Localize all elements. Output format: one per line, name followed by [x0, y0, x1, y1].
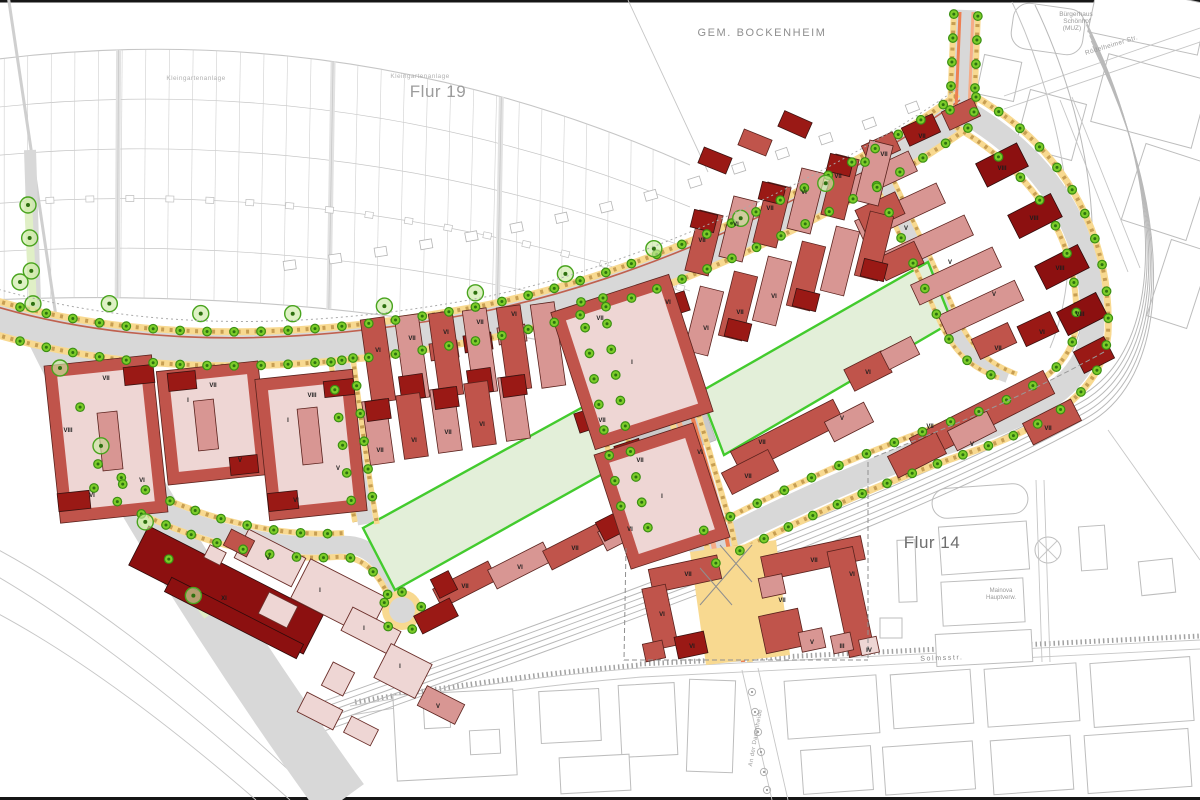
building-floor-label: VII [376, 448, 384, 454]
building-floor-label: VI [865, 370, 871, 376]
building [820, 226, 859, 296]
building-floor-label: V [436, 704, 440, 710]
building-floor-label: XI [221, 596, 227, 602]
building-floor-label: VI [849, 572, 855, 578]
area-label: Kleingartenanlage [390, 73, 449, 80]
building [752, 256, 791, 326]
building-floor-label: VI [771, 294, 777, 300]
building-floor-label: VI [511, 312, 517, 318]
building-floor-label: VII [1044, 426, 1052, 432]
building-floor-label: VII [461, 584, 469, 590]
building [724, 318, 752, 341]
building-floor-label: VI [139, 478, 145, 484]
building [57, 490, 91, 511]
building-floor-label: V [266, 556, 270, 562]
building-floor-label: VII [698, 238, 706, 244]
building [321, 662, 354, 696]
building [642, 640, 665, 662]
building-floor-label: VII [408, 336, 416, 342]
building-floor-label: V [948, 260, 952, 266]
building [396, 393, 429, 460]
building-floor-label: VII [444, 430, 452, 436]
area-label: Hauptverw. [986, 595, 1016, 601]
building-floor-label: V [810, 640, 814, 646]
building-floor-label: VIII [1029, 216, 1038, 222]
building-floor-label: VIII [1055, 266, 1064, 272]
street-label: An der Dammheide [748, 708, 764, 767]
building [123, 364, 155, 385]
building-floor-label: VII [596, 316, 604, 322]
building-floor-label: VI [443, 330, 449, 336]
building-floor-label: VI [411, 438, 417, 444]
building-floor-label: VII [834, 174, 842, 180]
area-label: Schönhof [1063, 18, 1091, 25]
building-floor-label: VI [517, 565, 523, 571]
building-floor-label: VI [665, 300, 671, 306]
building-floor-label: VI [733, 222, 739, 228]
building-floor-label: VII [744, 474, 752, 480]
area-label: (MUZ) [1063, 25, 1081, 32]
building-floor-label: VI [375, 348, 381, 354]
building-floor-label: IV [866, 648, 872, 654]
building [365, 398, 392, 421]
area-label: GEM. BOCKENHEIM [697, 27, 826, 39]
building [501, 374, 528, 397]
building [758, 608, 805, 653]
building-floor-label: VII [571, 546, 579, 552]
building-floor-label: VII [926, 424, 934, 430]
building-floor-label: VIII [997, 166, 1006, 172]
building-floor-label: VI [1039, 330, 1045, 336]
building-floor-label: VII [598, 418, 606, 424]
building-floor-label: III [839, 644, 844, 650]
building-floor-label: V [970, 442, 974, 448]
building-floor-label: VII [636, 458, 644, 464]
building-floor-label: VIII [307, 393, 316, 399]
building-floor-label: VI [627, 527, 633, 533]
building-floor-label: VI [479, 422, 485, 428]
building-floor-label: VIII [63, 428, 72, 434]
building-floor-label: VII [766, 206, 774, 212]
area-label: Flur 14 [904, 533, 960, 552]
building-floor-label: VII [209, 383, 217, 389]
building-floor-label: V [336, 466, 340, 472]
building-floor-label: VII [778, 598, 786, 604]
building [778, 111, 812, 139]
building [792, 288, 820, 311]
building-floor-label: VI [659, 612, 665, 618]
building-floor-label: VI [801, 190, 807, 196]
building [229, 455, 259, 476]
building [698, 147, 732, 174]
building-floor-label: VI [89, 493, 95, 499]
building [738, 129, 772, 156]
building-floor-label: VII [810, 558, 818, 564]
site-plan-page: GEM. BOCKENHEIMFlur 19Flur 14Kleingarten… [0, 0, 1200, 800]
building-floor-label: V [238, 458, 242, 464]
building-floor-label: VII [994, 346, 1002, 352]
area-label: Kleingartenanlage [166, 75, 225, 82]
building-floor-label: VII [102, 376, 110, 382]
site-plan-map: GEM. BOCKENHEIMFlur 19Flur 14Kleingarten… [0, 0, 1200, 800]
building-floor-label: V [904, 226, 908, 232]
building-floor-label: VII [758, 440, 766, 446]
area-label: Bürgerhaus [1059, 11, 1093, 18]
building-floor-label: VII [736, 310, 744, 316]
building-floor-label: V [992, 292, 996, 298]
building-floor-label: VII [880, 152, 888, 158]
building-floor-label: V [840, 416, 844, 422]
building [167, 371, 197, 392]
building-floor-label: VII [918, 134, 926, 140]
building [690, 209, 718, 232]
building-floor-label: VI [703, 326, 709, 332]
building [433, 386, 460, 409]
building [971, 323, 1017, 360]
building-floor-label: VII [684, 572, 692, 578]
area-label: Flur 19 [410, 82, 466, 101]
building-floor-label: VI [689, 644, 695, 650]
building-floor-label: VI [293, 498, 299, 504]
area-label: Mainova [990, 588, 1013, 594]
building-floor-label: VIII [1075, 312, 1084, 318]
building [830, 632, 853, 654]
building-floor-label: VII [476, 320, 484, 326]
building-floor-label: VI [697, 450, 703, 456]
map-frame-top [0, 0, 1200, 3]
building [344, 716, 379, 746]
